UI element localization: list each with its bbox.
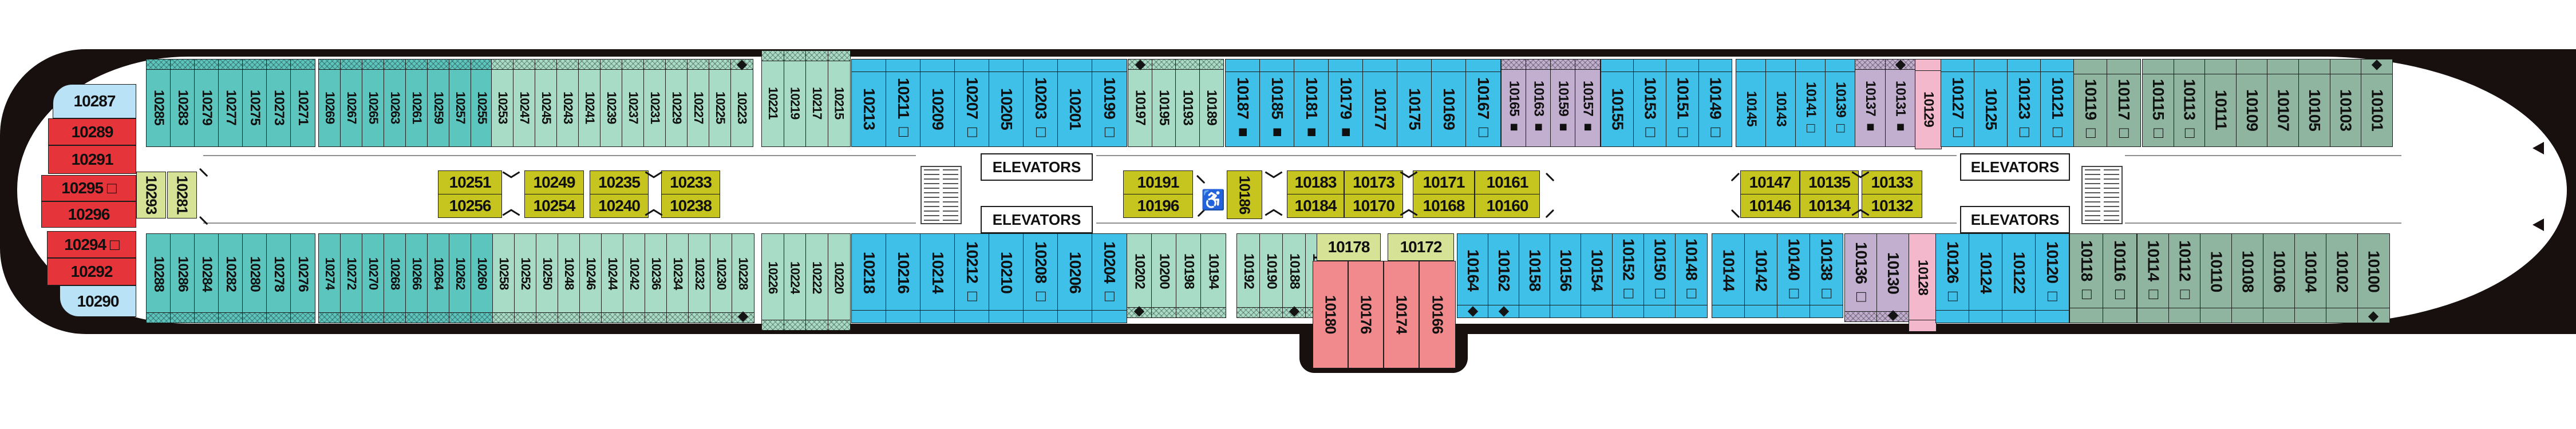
cabin-number: 10102	[2326, 236, 2358, 307]
cabin-10104[interactable]: 10104	[2294, 233, 2327, 323]
cabin-number[interactable]: 10170	[1345, 194, 1402, 218]
cabin-10267[interactable]: 10267	[340, 59, 363, 147]
cabin-10266[interactable]: 10266	[405, 233, 428, 323]
door-chevron-icon	[1265, 170, 1282, 180]
cabin-number[interactable]: 10173	[1345, 171, 1402, 194]
balcony-band	[557, 59, 579, 70]
cabin-10198[interactable]: 10198	[1176, 233, 1202, 318]
cabin-10118[interactable]: 10118 □	[2069, 233, 2104, 323]
balcony-band	[243, 312, 267, 323]
cabin-number: 10245	[535, 71, 557, 144]
cabin-10199[interactable]: 10199 □	[1092, 59, 1127, 147]
elevator-bank: ELEVATORS	[981, 153, 1093, 181]
cabin-number: 10101	[2361, 76, 2392, 144]
cabin-10115[interactable]: 10115 □	[2142, 59, 2174, 147]
cabin-number: 10252	[515, 236, 536, 311]
cabin-10130[interactable]: 10130	[1876, 233, 1910, 322]
cabin-10243[interactable]: 10243	[556, 59, 579, 147]
cabin-10222[interactable]: 10222	[805, 233, 828, 331]
cabin-10121[interactable]: 10121 □	[2040, 59, 2075, 147]
cabin-pair-10191-10196[interactable]: 1019110196	[1123, 170, 1193, 218]
balcony-band	[171, 59, 195, 70]
cabin-10138[interactable]: 10138 □	[1809, 233, 1843, 318]
balcony-band	[1644, 305, 1676, 317]
cabin-number[interactable]: 10249	[525, 171, 583, 194]
cabin-10193[interactable]: 10193	[1175, 59, 1200, 147]
cabin-10210[interactable]: 10210	[989, 233, 1024, 323]
cabin-10125[interactable]: 10125	[1974, 59, 2008, 147]
cabin-10236[interactable]: 10236	[645, 233, 667, 323]
balcony-band	[852, 310, 886, 323]
cabin-10209[interactable]: 10209	[920, 59, 955, 147]
cabin-10105[interactable]: 10105	[2298, 59, 2330, 147]
cabin-10176[interactable]: 10176	[1348, 261, 1384, 368]
cabin-10156[interactable]: 10156	[1550, 233, 1582, 318]
balcony-band	[384, 312, 406, 323]
cabin-10263[interactable]: 10263	[384, 59, 406, 147]
balcony-band	[852, 59, 886, 72]
cabin-number: 10178	[1317, 234, 1380, 260]
cabin-10239[interactable]: 10239	[600, 59, 623, 147]
cabin-10129[interactable]: 10129	[1915, 59, 1942, 149]
cabin-10143[interactable]: 10143	[1765, 59, 1796, 147]
cabin-10225[interactable]: 10225	[709, 59, 732, 147]
cabin-10172[interactable]: 10172	[1388, 233, 1454, 261]
cabin-number: 10277	[219, 71, 243, 144]
cabin-10231[interactable]: 10231	[643, 59, 666, 147]
cabin-10215[interactable]: 10215	[828, 50, 851, 147]
cabin-10281[interactable]: 10281	[167, 172, 197, 219]
cabin-number[interactable]: 10240	[590, 194, 648, 218]
cabin-10227[interactable]: 10227	[687, 59, 710, 147]
stairs-icon	[920, 166, 962, 224]
balcony-band	[1260, 307, 1283, 317]
cabin-10288[interactable]: 10288	[146, 233, 171, 323]
cabin-number[interactable]: 10196	[1124, 194, 1192, 218]
cabin-pair-10251-10256[interactable]: 1025110256	[438, 170, 502, 218]
cabin-10296[interactable]: 10296	[41, 201, 136, 228]
balcony-band	[2138, 308, 2169, 323]
cabin-10237[interactable]: 10237	[622, 59, 645, 147]
cabin-number: 10157 ■	[1575, 71, 1600, 144]
cabin-number[interactable]: 10184	[1287, 194, 1344, 218]
cabin-10274[interactable]: 10274	[318, 233, 341, 323]
balcony-band	[362, 59, 384, 70]
cabin-10207[interactable]: 10207 □	[954, 59, 990, 147]
cabin-number: 10116 □	[2103, 236, 2136, 307]
cabin-10221[interactable]: 10221	[761, 50, 784, 147]
cabin-10286[interactable]: 10286	[170, 233, 195, 323]
cabin-10229[interactable]: 10229	[665, 59, 688, 147]
balcony-band	[2036, 310, 2069, 323]
cabin-10139[interactable]: 10139 □	[1825, 59, 1856, 147]
cabin-10141[interactable]: 10141 □	[1795, 59, 1826, 147]
door-chevron-icon	[503, 170, 520, 180]
cabin-10291[interactable]: 10291	[48, 145, 136, 174]
cabin-10206[interactable]: 10206	[1057, 233, 1093, 323]
balcony-band	[2070, 308, 2103, 323]
cabin-number: 10179 ■	[1329, 73, 1363, 144]
cabin-10114[interactable]: 10114 □	[2137, 233, 2170, 323]
cabin-10126[interactable]: 10126 □	[1935, 233, 1970, 323]
balcony-band	[2200, 308, 2232, 323]
balcony-band	[762, 51, 784, 61]
cabin-10165[interactable]: 10165 ■	[1501, 59, 1527, 147]
cabin-10226[interactable]: 10226	[761, 233, 784, 331]
cabin-10204[interactable]: 10204 □	[1092, 233, 1127, 323]
cabin-number[interactable]: 10171	[1413, 171, 1474, 194]
cabin-10293[interactable]: 10293	[136, 172, 166, 219]
cabin-10187[interactable]: 10187 ■	[1225, 59, 1261, 147]
cabin-10247[interactable]: 10247	[513, 59, 536, 147]
cabin-10258[interactable]: 10258	[492, 233, 515, 323]
cabin-10269[interactable]: 10269	[318, 59, 341, 147]
cabin-number: 10144	[1712, 236, 1745, 304]
cabin-number[interactable]: 10161	[1475, 171, 1539, 194]
cabin-10174[interactable]: 10174	[1384, 261, 1419, 368]
cabin-10284[interactable]: 10284	[194, 233, 219, 323]
cabin-10136[interactable]: 10136 □	[1844, 233, 1878, 322]
cabin-10246[interactable]: 10246	[579, 233, 602, 323]
cabin-10259[interactable]: 10259	[427, 59, 450, 147]
cabin-number[interactable]: 10256	[438, 194, 501, 218]
cabin-10179[interactable]: 10179 ■	[1328, 59, 1364, 147]
cabin-pair-10135-10134[interactable]: 1013510134	[1800, 170, 1859, 218]
cabin-10228[interactable]: 10228	[732, 233, 754, 323]
cabin-10262[interactable]: 10262	[449, 233, 472, 323]
stair-flight	[2085, 169, 2100, 221]
cabin-number: 10241	[579, 71, 600, 144]
cabin-10112[interactable]: 10112 □	[2168, 233, 2201, 323]
cabin-10245[interactable]: 10245	[535, 59, 558, 147]
cabin-10195[interactable]: 10195	[1152, 59, 1176, 147]
cabin-10123[interactable]: 10123 □	[2007, 59, 2041, 147]
cabin-10232[interactable]: 10232	[688, 233, 711, 323]
cabin-10120[interactable]: 10120 □	[2035, 233, 2069, 323]
balcony-band	[1575, 59, 1600, 70]
cabin-number: 10226	[762, 236, 784, 319]
cabin-number: 10232	[689, 236, 710, 311]
stair-flight	[2104, 169, 2119, 221]
cabin-10152[interactable]: 10152 □	[1612, 233, 1645, 318]
cabin-10219[interactable]: 10219	[784, 50, 807, 147]
cabin-10107[interactable]: 10107	[2267, 59, 2299, 147]
cabin-number[interactable]: 10254	[525, 194, 583, 218]
cabin-10261[interactable]: 10261	[405, 59, 428, 147]
cabin-number: 10150 □	[1644, 236, 1676, 304]
cabin-10163[interactable]: 10163 ■	[1526, 59, 1551, 147]
balcony-band	[428, 59, 449, 70]
balcony-band	[1176, 59, 1199, 70]
cabin-10285[interactable]: 10285	[146, 59, 171, 147]
balcony-band	[1613, 305, 1644, 317]
cabin-number[interactable]: 10233	[662, 171, 720, 194]
cabin-10212[interactable]: 10212 □	[954, 233, 990, 323]
cabin-pair-10249-10254[interactable]: 1024910254	[524, 170, 584, 218]
cabin-10200[interactable]: 10200	[1151, 233, 1177, 318]
cabin-10250[interactable]: 10250	[536, 233, 559, 323]
cabin-10175[interactable]: 10175	[1397, 59, 1432, 147]
cabin-10180[interactable]: 10180	[1313, 261, 1348, 368]
balcony-band	[2330, 59, 2361, 74]
cabin-pair-10183-10184[interactable]: 1018310184	[1287, 170, 1344, 218]
cabin-number: 10229	[666, 71, 688, 144]
cabin-number: 10117 □	[2107, 76, 2140, 144]
cabin-number[interactable]: 10134	[1800, 194, 1858, 218]
balcony-band	[1260, 59, 1294, 72]
cabin-pair-10133-10132[interactable]: 1013310132	[1862, 170, 1922, 218]
cabin-10150[interactable]: 10150 □	[1643, 233, 1676, 318]
cabin-10109[interactable]: 10109	[2236, 59, 2268, 147]
cabin-number: 10139 □	[1826, 73, 1855, 144]
cabin-10216[interactable]: 10216	[886, 233, 921, 323]
cabin-10189[interactable]: 10189	[1199, 59, 1224, 147]
balcony-band	[1526, 59, 1551, 70]
cabin-number[interactable]: 10251	[438, 171, 501, 194]
cabin-number[interactable]: 10235	[590, 171, 648, 194]
cabin-10230[interactable]: 10230	[710, 233, 733, 323]
cabin-10185[interactable]: 10185 ■	[1259, 59, 1295, 147]
balcony-band	[2237, 59, 2267, 74]
cabin-number[interactable]: 10168	[1413, 194, 1474, 218]
cabin-number[interactable]: 10191	[1124, 171, 1192, 194]
balcony-band	[2169, 308, 2200, 323]
cabin-10265[interactable]: 10265	[362, 59, 385, 147]
cabin-10278[interactable]: 10278	[266, 233, 291, 323]
cabin-number: 10167 □	[1466, 73, 1500, 144]
cabin-10127[interactable]: 10127 □	[1941, 59, 1975, 147]
cabin-10110[interactable]: 10110	[2200, 233, 2233, 323]
cabin-10166[interactable]: 10166	[1419, 261, 1456, 368]
cabin-10154[interactable]: 10154	[1581, 233, 1613, 318]
cabin-10117[interactable]: 10117 □	[2107, 59, 2141, 147]
cabin-10159[interactable]: 10159 ■	[1550, 59, 1576, 147]
cabin-10108[interactable]: 10108	[2231, 233, 2264, 323]
balcony-band	[806, 320, 828, 330]
cabin-10137[interactable]: 10137 ■	[1855, 59, 1886, 147]
cabin-10248[interactable]: 10248	[558, 233, 580, 323]
cabin-10140[interactable]: 10140 □	[1777, 233, 1811, 318]
cabin-10294[interactable]: 10294 □	[47, 231, 136, 258]
cabin-number: 10250	[536, 236, 558, 311]
cabin-number[interactable]: 10133	[1862, 171, 1922, 194]
cabin-number: 10185 ■	[1260, 73, 1294, 144]
balcony-band	[1024, 59, 1058, 72]
cabin-number: 10197	[1128, 71, 1152, 144]
cabin-10145[interactable]: 10145	[1736, 59, 1767, 147]
cabin-10205[interactable]: 10205	[989, 59, 1024, 147]
cabin-pair-10171-10168[interactable]: 1017110168	[1413, 170, 1475, 218]
cabin-number: 10234	[667, 236, 689, 311]
balcony-band	[267, 59, 291, 70]
cabin-10119[interactable]: 10119 □	[2073, 59, 2108, 147]
cabin-10253[interactable]: 10253	[491, 59, 514, 147]
cabin-10162[interactable]: 10162	[1488, 233, 1520, 318]
cabin-10201[interactable]: 10201	[1057, 59, 1093, 147]
cabin-10220[interactable]: 10220	[828, 233, 851, 331]
cabin-10124[interactable]: 10124	[1969, 233, 2003, 323]
cabin-number: 10189	[1200, 71, 1223, 144]
cabin-10268[interactable]: 10268	[384, 233, 406, 323]
cabin-pair-10235-10240[interactable]: 1023510240	[590, 170, 649, 218]
cabin-number: 10222	[806, 236, 828, 319]
cabin-10252[interactable]: 10252	[514, 233, 537, 323]
cabin-number[interactable]: 10238	[662, 194, 720, 218]
cabin-10113[interactable]: 10113 □	[2174, 59, 2206, 147]
cabin-pair-10161-10160[interactable]: 1016110160	[1475, 170, 1540, 218]
cabin-10148[interactable]: 10148 □	[1675, 233, 1708, 318]
cabin-10158[interactable]: 10158	[1519, 233, 1551, 318]
cabin-10277[interactable]: 10277	[218, 59, 243, 147]
cabin-10282[interactable]: 10282	[218, 233, 243, 323]
cabin-10149[interactable]: 10149 □	[1698, 59, 1732, 147]
cabin-10255[interactable]: 10255	[471, 59, 493, 147]
cabin-number: 10230	[710, 236, 732, 311]
cabin-10273[interactable]: 10273	[266, 59, 291, 147]
cabin-10270[interactable]: 10270	[362, 233, 385, 323]
cabin-10242[interactable]: 10242	[623, 233, 646, 323]
cabin-10167[interactable]: 10167 □	[1465, 59, 1501, 147]
cabin-10234[interactable]: 10234	[666, 233, 689, 323]
balcony-band	[267, 312, 291, 323]
cabin-10287[interactable]: 10287	[53, 84, 136, 118]
cabin-10271[interactable]: 10271	[290, 59, 315, 147]
cabin-10164[interactable]: 10164	[1457, 233, 1489, 318]
cabin-10280[interactable]: 10280	[242, 233, 267, 323]
corridor-line	[203, 223, 916, 224]
cabin-number: 10265	[362, 71, 384, 144]
cabin-10223[interactable]: 10223	[730, 59, 753, 147]
cabin-10260[interactable]: 10260	[471, 233, 493, 323]
balcony-band	[1941, 59, 1974, 72]
cabin-10122[interactable]: 10122	[2002, 233, 2036, 323]
cabin-10186[interactable]: 10186	[1227, 170, 1262, 219]
cabin-number: 10159 ■	[1551, 71, 1575, 144]
cabin-number: 10118 □	[2070, 236, 2103, 307]
cabin-10101[interactable]: 10101	[2361, 59, 2393, 147]
cabin-10217[interactable]: 10217	[805, 50, 828, 147]
cabin-10275[interactable]: 10275	[242, 59, 267, 147]
cabin-10157[interactable]: 10157 ■	[1575, 59, 1601, 147]
cabin-10178[interactable]: 10178	[1317, 233, 1381, 261]
cabin-number: 10248	[558, 236, 580, 311]
balcony-band	[2002, 310, 2036, 323]
cabin-10202[interactable]: 10202	[1127, 233, 1152, 318]
cabin-number[interactable]: 10183	[1287, 171, 1344, 194]
cabin-10244[interactable]: 10244	[601, 233, 624, 323]
cabin-10169[interactable]: 10169	[1431, 59, 1467, 147]
cabin-10224[interactable]: 10224	[784, 233, 807, 331]
cabin-number: 10193	[1176, 71, 1199, 144]
cabin-10289[interactable]: 10289	[48, 118, 136, 145]
cabin-number: 10121 □	[2041, 73, 2074, 144]
cabin-number: 10198	[1176, 236, 1201, 306]
cabin-number[interactable]: 10146	[1741, 194, 1799, 218]
cabin-10279[interactable]: 10279	[194, 59, 219, 147]
balcony-band	[623, 312, 645, 323]
cabin-10292[interactable]: 10292	[47, 258, 136, 285]
cabin-number[interactable]: 10147	[1741, 171, 1799, 194]
cabin-number: 10145	[1736, 73, 1766, 144]
cabin-pair-10147-10146[interactable]: 1014710146	[1740, 170, 1800, 218]
door-chevron-icon	[645, 170, 662, 180]
cabin-10128[interactable]: 10128	[1909, 233, 1937, 332]
balcony-band	[1502, 59, 1526, 70]
cabin-10100[interactable]: 10100	[2357, 233, 2390, 323]
balcony-band	[1845, 311, 1877, 321]
cabin-number: 10151 □	[1666, 73, 1699, 144]
cabin-10106[interactable]: 10106	[2263, 233, 2296, 323]
cabin-10211[interactable]: 10211 □	[886, 59, 921, 147]
cabin-10194[interactable]: 10194	[1200, 233, 1226, 318]
cabin-10218[interactable]: 10218	[851, 233, 887, 323]
cabin-number: 10136 □	[1845, 236, 1877, 310]
cabin-10264[interactable]: 10264	[427, 233, 450, 323]
cabin-10197[interactable]: 10197	[1128, 59, 1152, 147]
cabin-pair-10173-10170[interactable]: 1017310170	[1344, 170, 1403, 218]
elevator-bank: ELEVATORS	[1960, 206, 2070, 233]
cabin-10208[interactable]: 10208 □	[1023, 233, 1058, 323]
balcony-band	[1466, 59, 1500, 72]
cabin-number: 10137 ■	[1855, 71, 1885, 144]
cabin-10283[interactable]: 10283	[170, 59, 195, 147]
cabin-number[interactable]: 10132	[1862, 194, 1922, 218]
cabin-10213[interactable]: 10213	[851, 59, 887, 147]
cabin-number: 10140 □	[1777, 236, 1810, 304]
cabin-10203[interactable]: 10203 □	[1023, 59, 1058, 147]
cabin-pair-10233-10238[interactable]: 1023310238	[661, 170, 720, 218]
cabin-number: 10104	[2295, 236, 2326, 307]
cabin-number: 10100	[2358, 236, 2389, 307]
cabin-10111[interactable]: 10111	[2204, 59, 2237, 147]
stairs-icon	[2081, 166, 2123, 224]
cabin-10103[interactable]: 10103	[2330, 59, 2362, 147]
cabin-10257[interactable]: 10257	[449, 59, 472, 147]
cabin-10241[interactable]: 10241	[578, 59, 601, 147]
cabin-10290[interactable]: 10290	[60, 285, 136, 317]
cabin-10153[interactable]: 10153 □	[1633, 59, 1667, 147]
door-chevron-icon	[1400, 170, 1417, 180]
balcony-band	[2205, 59, 2236, 74]
cabin-10177[interactable]: 10177	[1362, 59, 1398, 147]
balcony-band	[1736, 59, 1766, 72]
cabin-number: 10278	[267, 236, 291, 311]
cabin-number: 10281	[168, 173, 196, 217]
cabin-10188[interactable]: 10188	[1282, 233, 1306, 318]
cabin-10151[interactable]: 10151 □	[1666, 59, 1700, 147]
cabin-10192[interactable]: 10192	[1236, 233, 1261, 318]
cabin-10276[interactable]: 10276	[290, 233, 315, 323]
cabin-10190[interactable]: 10190	[1259, 233, 1283, 318]
cabin-number[interactable]: 10135	[1800, 171, 1858, 194]
cabin-10102[interactable]: 10102	[2326, 233, 2358, 323]
cabin-10181[interactable]: 10181 ■	[1294, 59, 1329, 147]
balcony-band	[1363, 59, 1397, 72]
cabin-10214[interactable]: 10214	[920, 233, 955, 323]
cabin-10142[interactable]: 10142	[1744, 233, 1778, 318]
cabin-10155[interactable]: 10155	[1601, 59, 1634, 147]
cabin-10144[interactable]: 10144	[1712, 233, 1745, 318]
cabin-10116[interactable]: 10116 □	[2103, 233, 2137, 323]
cabin-number[interactable]: 10160	[1475, 194, 1539, 218]
elevator-bank: ELEVATORS	[981, 206, 1093, 233]
cabin-number: 10141 □	[1796, 73, 1826, 144]
cabin-number: 10127 □	[1941, 73, 1974, 144]
cabin-10272[interactable]: 10272	[340, 233, 363, 323]
stair-flight	[943, 169, 958, 221]
cabin-10131[interactable]: 10131 ■	[1885, 59, 1916, 147]
cabin-10295[interactable]: 10295 □	[41, 175, 136, 201]
